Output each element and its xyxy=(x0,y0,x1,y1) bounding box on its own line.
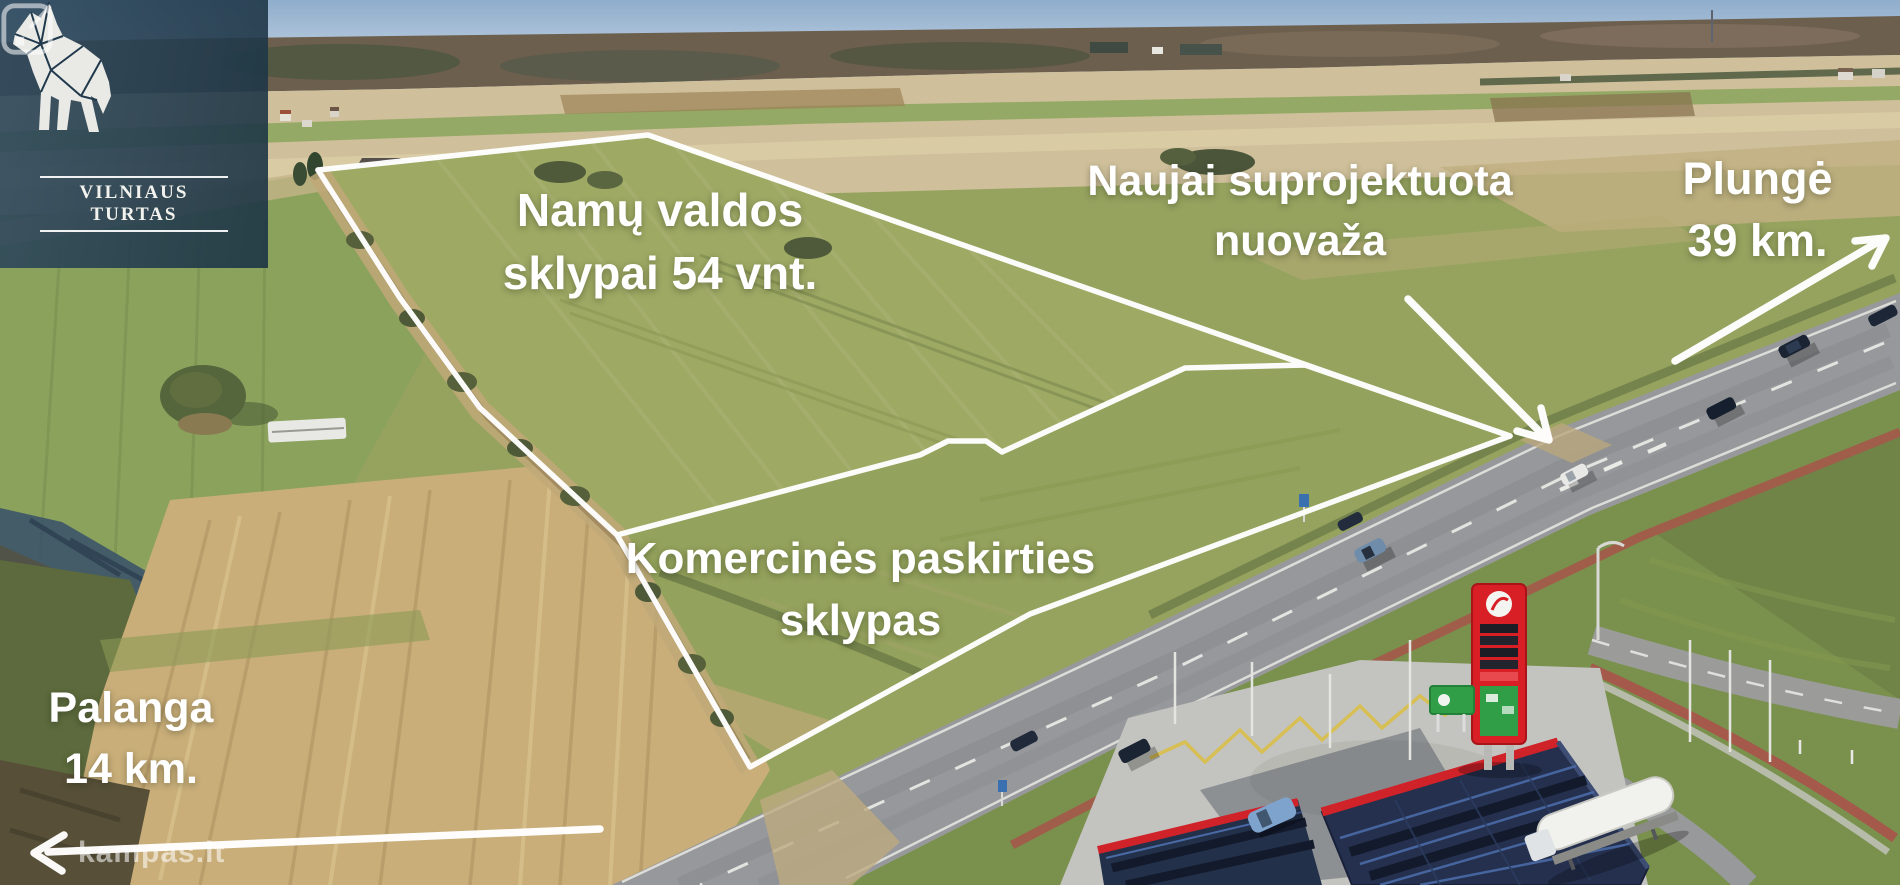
commercial-plot-outline-top xyxy=(617,365,1510,535)
label-line: Namų valdos xyxy=(430,179,890,242)
label-line: Plungė xyxy=(1635,148,1880,210)
label-palanga-distance: Palanga 14 km. xyxy=(8,678,254,800)
annotation-overlay xyxy=(0,0,1900,885)
label-commercial-plot: Komercinės paskirties sklypas xyxy=(588,528,1133,652)
label-plunge-distance: Plungė 39 km. xyxy=(1635,148,1880,272)
kampas-icon xyxy=(0,0,58,58)
label-line: nuovaža xyxy=(1030,211,1570,271)
label-line: sklypai 54 vnt. xyxy=(430,242,890,305)
label-residential-plots: Namų valdos sklypai 54 vnt. xyxy=(430,179,890,305)
label-line: sklypas xyxy=(588,590,1133,652)
label-access-road: Naujai suprojektuota nuovaža xyxy=(1030,151,1570,271)
agency-name: VILNIAUS TURTAS xyxy=(40,176,228,232)
label-line: 39 km. xyxy=(1635,210,1880,272)
label-line: Palanga xyxy=(8,678,254,739)
label-line: Naujai suprojektuota xyxy=(1030,151,1570,211)
listing-photo-root: Namų valdos sklypai 54 vnt. Naujai supro… xyxy=(0,0,1900,885)
label-line: 14 km. xyxy=(8,739,254,800)
label-line: Komercinės paskirties xyxy=(588,528,1133,590)
arrow-nuovaza xyxy=(1408,299,1549,440)
kampas-watermark: kampas.lt xyxy=(78,836,225,870)
